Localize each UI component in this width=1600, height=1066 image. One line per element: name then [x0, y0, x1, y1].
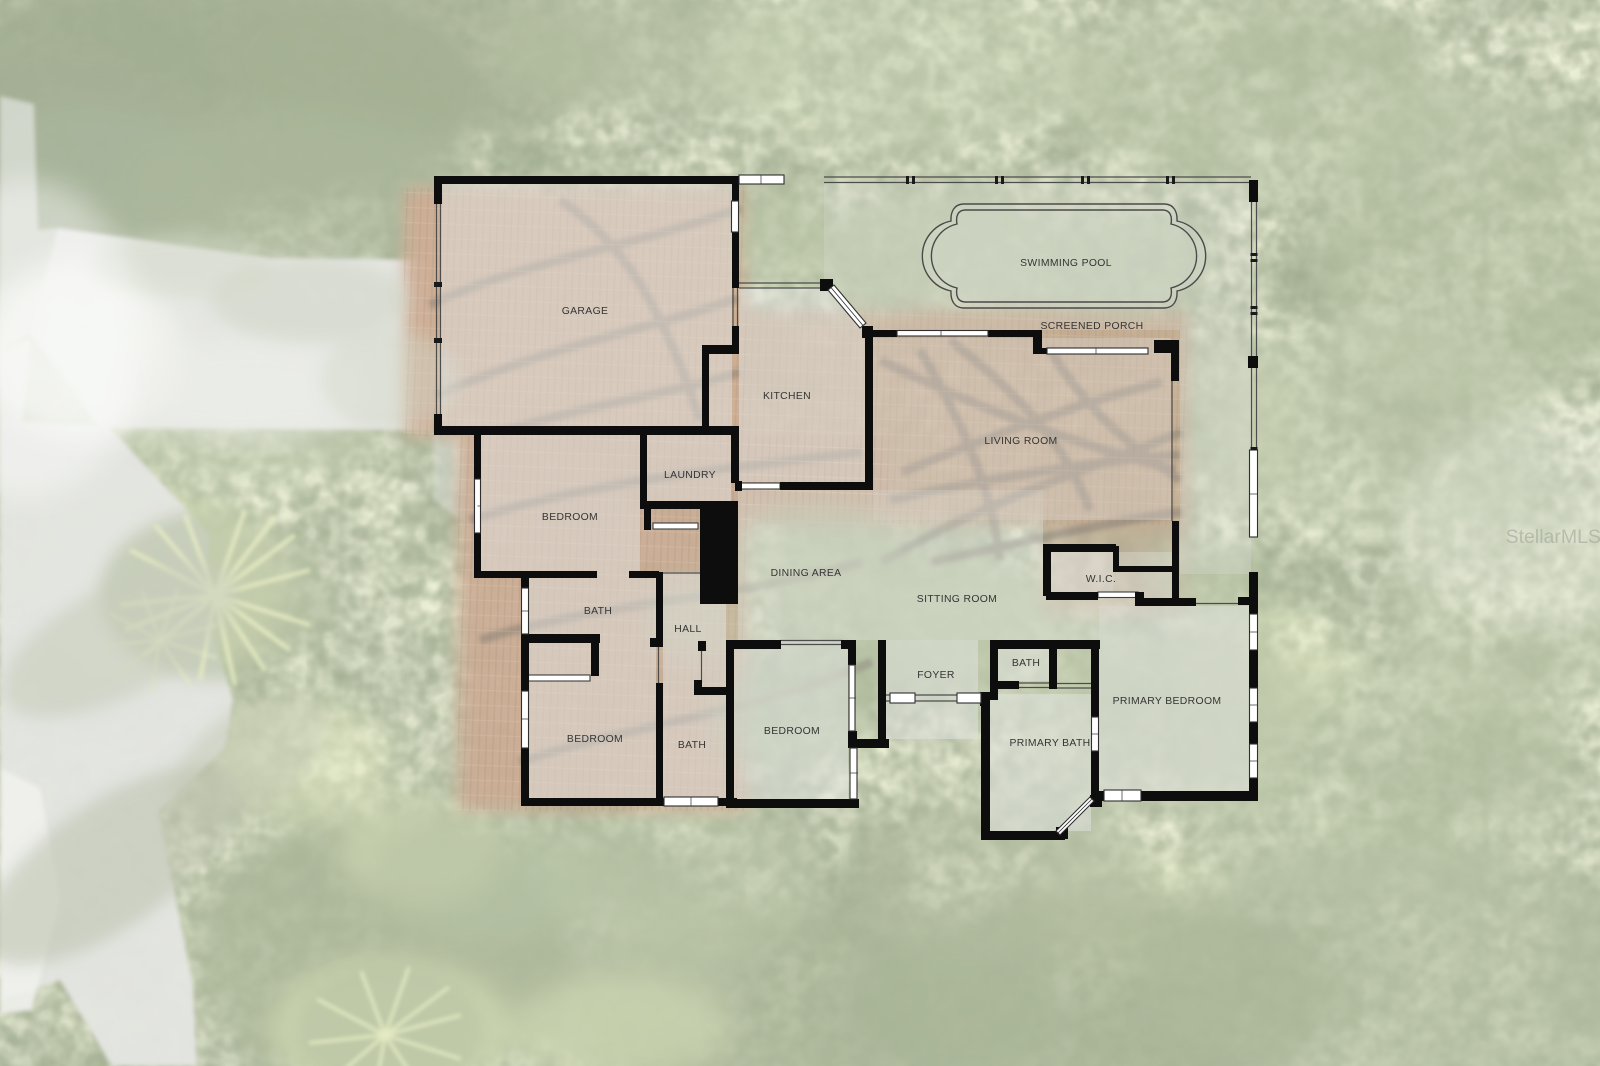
svg-text:BEDROOM: BEDROOM — [542, 512, 598, 523]
svg-text:PRIMARY BATH: PRIMARY BATH — [1010, 738, 1091, 749]
svg-text:SITTING ROOM: SITTING ROOM — [917, 594, 997, 605]
svg-text:DINING AREA: DINING AREA — [771, 568, 842, 579]
svg-text:LIVING ROOM: LIVING ROOM — [984, 436, 1057, 447]
svg-text:BATH: BATH — [678, 740, 706, 751]
svg-text:PRIMARY BEDROOM: PRIMARY BEDROOM — [1113, 696, 1222, 707]
svg-text:LAUNDRY: LAUNDRY — [664, 470, 716, 481]
svg-text:SCREENED PORCH: SCREENED PORCH — [1040, 321, 1143, 332]
svg-text:BATH: BATH — [1012, 658, 1040, 669]
svg-text:BEDROOM: BEDROOM — [764, 726, 820, 737]
svg-text:GARAGE: GARAGE — [562, 306, 609, 317]
svg-text:SWIMMING POOL: SWIMMING POOL — [1020, 258, 1112, 269]
svg-text:W.I.C.: W.I.C. — [1086, 574, 1116, 585]
svg-text:HALL: HALL — [674, 624, 701, 635]
svg-text:BEDROOM: BEDROOM — [567, 734, 623, 745]
svg-text:FOYER: FOYER — [917, 670, 955, 681]
svg-text:KITCHEN: KITCHEN — [763, 391, 811, 402]
svg-text:BATH: BATH — [584, 606, 612, 617]
